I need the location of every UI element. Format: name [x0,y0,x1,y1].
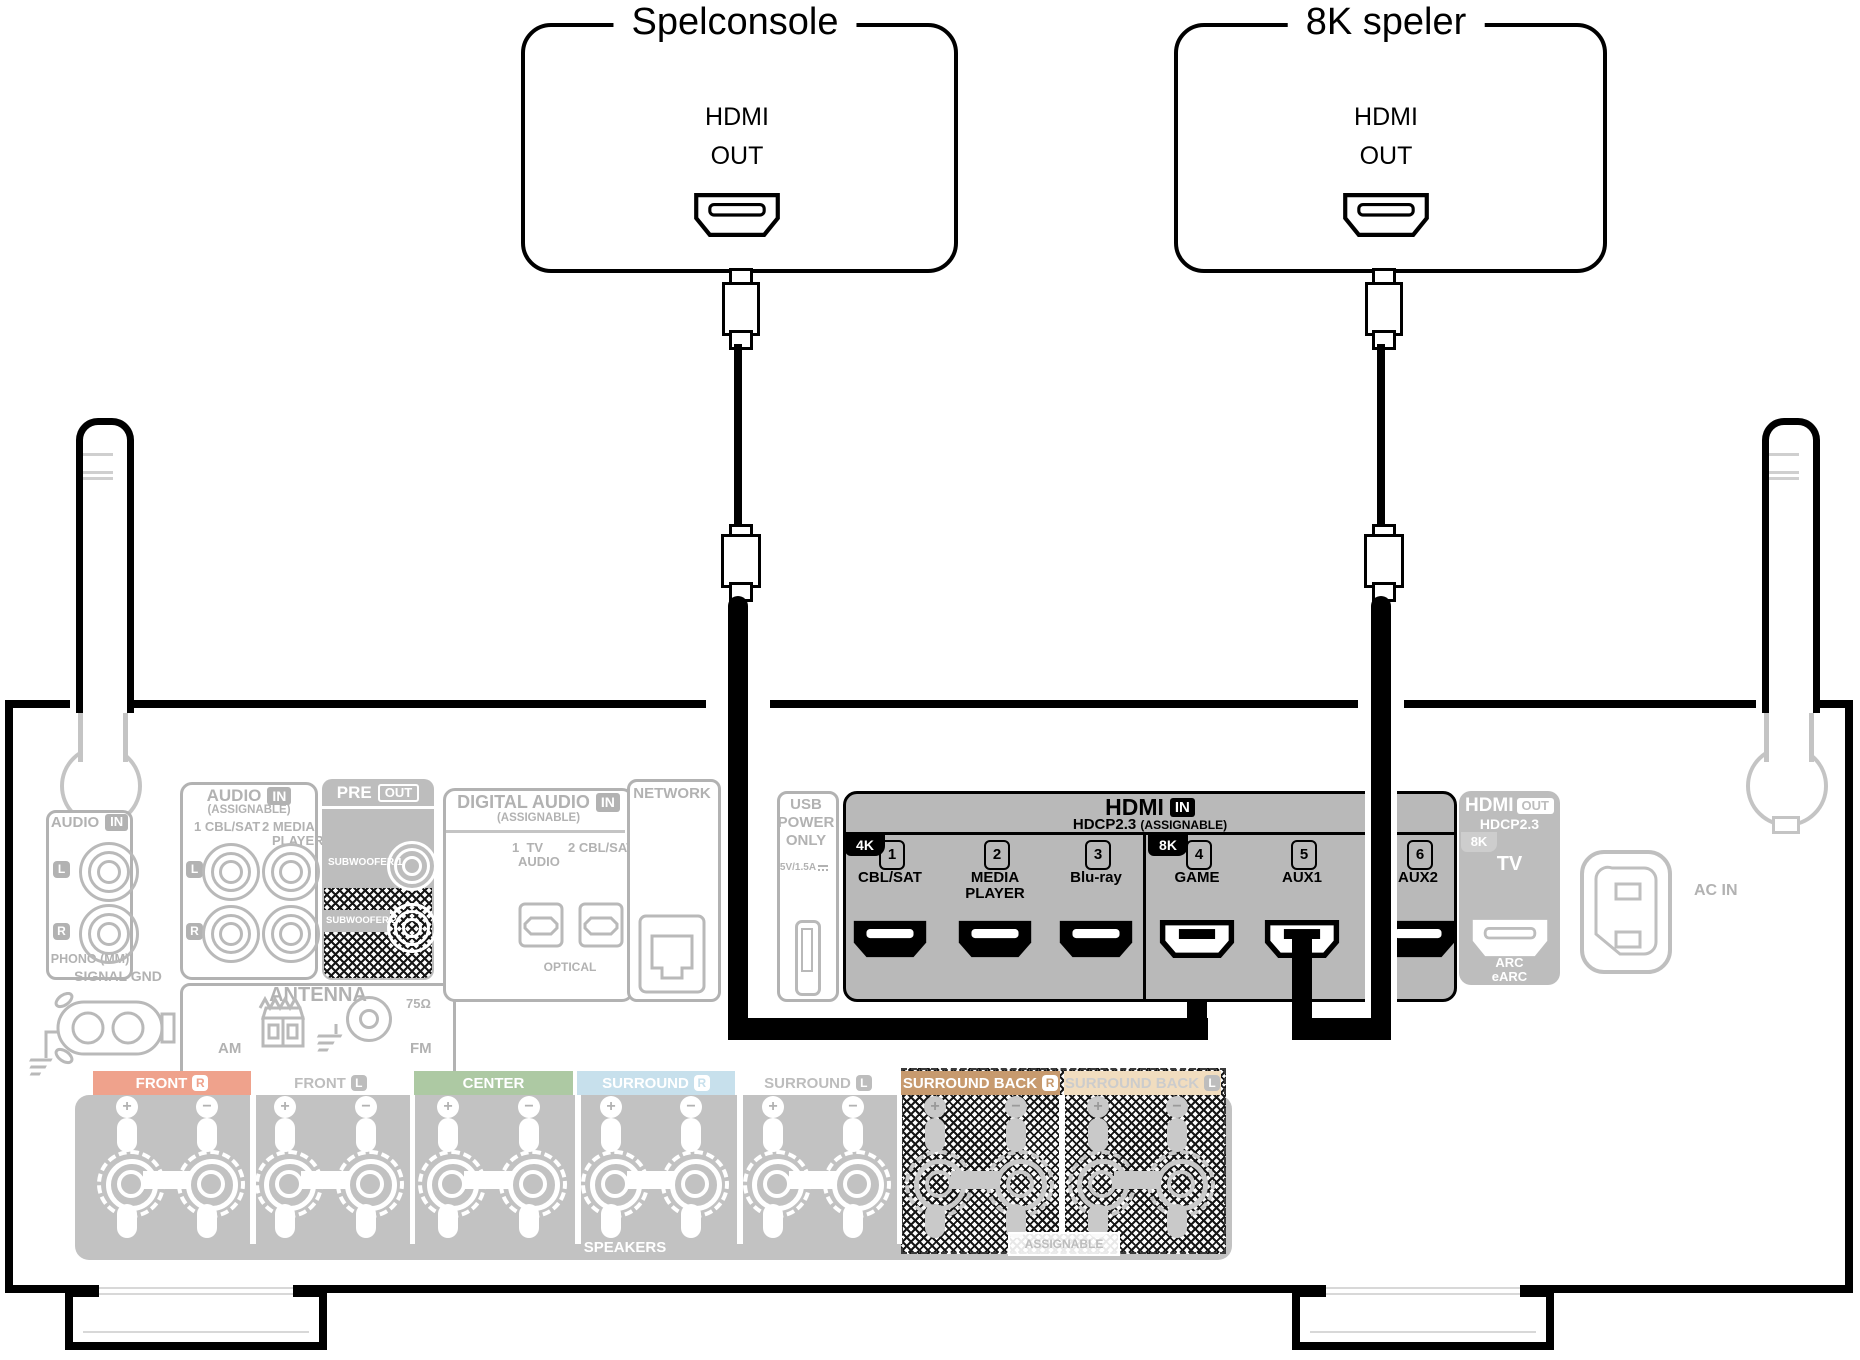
post-polarity-plus: + [600,1096,622,1118]
post-stem [1006,1118,1026,1152]
rca-jack [402,918,422,938]
arc-label: ARC [1459,955,1560,970]
hdmi-in-port-number-3: 3 [1085,840,1111,870]
ethernet-port-icon [638,914,706,994]
8k-tab: 8K [1148,835,1188,856]
terminal-divider [575,1095,581,1244]
post-polarity-minus: − [1166,1096,1188,1118]
in-badge: IN [596,793,620,811]
speaker-label-front-r: FRONTR [93,1071,251,1095]
post-stem [681,1118,701,1152]
post-polarity-plus: + [116,1096,138,1118]
speaker-label-surround-l: SURROUNDL [739,1071,897,1095]
binding-post-center [925,1170,953,1198]
ohm-label: 75Ω [406,996,431,1011]
terminal-divider [250,1095,256,1244]
binding-post-center [763,1170,791,1198]
channel-badge: R [192,1075,208,1091]
binding-post-center [117,1170,145,1198]
panel-gap [897,1095,902,1244]
usb-label2: POWER [775,814,837,831]
assignable-badge: ASSIGNABLE [1008,1232,1120,1256]
digital-audio-title: DIGITAL AUDIOIN [443,792,634,813]
post-stem [519,1118,539,1152]
game-console-out-label: OUT [637,142,837,171]
binding-post-center [843,1170,871,1198]
rca-jack [97,860,121,884]
speaker-label-surround-r: SURROUNDR [577,1071,735,1095]
8k-player-hdmi-out-icon [1341,192,1431,238]
signal-gnd-label: SIGNAL GND [58,968,178,984]
assignable-subtitle: (ASSIGNABLE) [443,812,634,824]
post-polarity-plus: + [1087,1096,1109,1118]
channel-badge: R [1042,1075,1058,1091]
post-polarity-plus: + [762,1096,784,1118]
post-stem [356,1118,376,1152]
earc-label: eARC [1459,969,1560,984]
am-terminal-icon [252,992,314,1062]
hdmi-in-zone-divider [1143,835,1146,999]
binding-post-center [356,1170,384,1198]
post-stem [275,1204,295,1238]
optical-caption: OPTICAL [510,960,630,974]
game-console-hdmi-label: HDMI [637,103,837,132]
rca-jack [97,922,121,946]
post-stem [438,1204,458,1238]
in-badge: IN [105,814,128,831]
subwoofer2-label: SUBWOOFER 2 [324,915,397,926]
connection-diagram: Spelconsole HDMI OUT 8K speler HDMI OUT … [0,0,1860,1360]
binding-post-center [601,1170,629,1198]
post-stem [601,1118,621,1152]
audio-in-assignable-title: AUDIOIN [180,786,318,806]
usb-label3: ONLY [775,832,837,849]
post-stem [763,1118,783,1152]
8k-tab-gray: 8K [1461,832,1497,852]
game-console-hdmi-out-icon [692,192,782,238]
channel-l-chip: L [53,861,70,878]
terminal-divider [737,1095,743,1244]
channel-badge: L [856,1075,872,1091]
assignable-subtitle: (ASSIGNABLE) [180,804,318,816]
am-ground-icon [312,1024,346,1060]
usb-label: USB [775,796,837,813]
post-stem [519,1204,539,1238]
channel-r-chip: R [53,923,70,940]
tv-label: TV [1459,853,1560,876]
receiver-foot-right [1292,1285,1554,1350]
post-stem [1167,1204,1187,1238]
rca-jack [219,922,243,946]
fm-label: FM [410,1040,432,1057]
rca-jack [279,860,303,884]
in-badge: IN [1170,798,1195,818]
post-polarity-minus: − [518,1096,540,1118]
hdmi-in-port-label-5: AUX1 [1242,870,1362,886]
hdmi-out-section: HDMIOUT HDCP2.3 8K TV ARC eARC [1459,791,1560,985]
divider [446,830,625,833]
post-polarity-minus: − [842,1096,864,1118]
post-stem [925,1118,945,1152]
dc-symbol [818,865,828,871]
hdmi-in-port-label-4: GAME [1137,870,1257,886]
panel-gap [410,1095,415,1244]
rca-jack [279,922,303,946]
post-stem [763,1204,783,1238]
hdmi-in-port-icon-2 [957,918,1033,960]
post-polarity-plus: + [437,1096,459,1118]
bottom-edge-gap [1320,1269,1526,1279]
binding-post-center [681,1170,709,1198]
post-stem [925,1204,945,1238]
8k-player-title: 8K speler [1288,0,1485,44]
cblsat-label: 2 CBL/SAT [568,840,634,855]
post-stem [117,1118,137,1152]
speaker-label-front-l: FRONTL [251,1071,410,1095]
hdmi-in-port-icon-4 [1159,918,1235,960]
binding-post-center [1167,1170,1195,1198]
post-stem [681,1204,701,1238]
input1-label: 1 CBL/SAT [194,819,260,834]
hdmi-out-hdcp: HDCP2.3 [1459,816,1560,832]
channel-badge: L [351,1075,367,1091]
rca-jack [219,860,243,884]
am-label: AM [218,1040,241,1057]
post-stem [843,1118,863,1152]
tv-audio-label2: AUDIO [518,854,560,869]
ac-inlet-icon [1578,848,1674,976]
channel-l-chip: L [186,861,203,878]
ac-in-label: AC IN [1694,882,1738,900]
binding-post-center [438,1170,466,1198]
network-title: NETWORK [625,785,719,802]
binding-post-center [197,1170,225,1198]
post-stem [117,1204,137,1238]
game-console-title: Spelconsole [613,0,856,44]
post-stem [197,1118,217,1152]
channel-badge: R [694,1075,710,1091]
hdmi-in-port-number-1: 1 [879,840,905,870]
out-badge: OUT [1517,798,1554,815]
input2-label: 2 MEDIA [262,819,315,834]
speaker-label-surround-back-l: SURROUND BACKL [1064,1071,1221,1095]
usb-port-inner [801,928,813,972]
hdmi-in-port-number-5: 5 [1291,840,1317,870]
post-stem [275,1118,295,1152]
left-antenna [76,418,134,713]
post-polarity-minus: − [355,1096,377,1118]
post-stem [601,1204,621,1238]
post-stem [1167,1118,1187,1152]
hdcp-assignable: (ASSIGNABLE) [1140,818,1227,832]
hdmi-in-port-number-4: 4 [1186,840,1212,870]
post-polarity-minus: − [680,1096,702,1118]
right-antenna [1762,418,1820,713]
hdmi-in-port-number-2: 2 [984,840,1010,870]
receiver-foot-left [65,1285,327,1350]
hdmi-out-tv-port-icon [1468,917,1552,959]
8k-player-hdmi-label: HDMI [1286,103,1486,132]
post-polarity-plus: + [274,1096,296,1118]
usb-rating: 5V/1.5A [771,862,837,873]
divider [322,806,434,809]
fm-coax-inner [359,1009,379,1029]
post-stem [843,1204,863,1238]
post-polarity-plus: + [924,1096,946,1118]
speaker-label-surround-back-r: SURROUND BACKR [901,1071,1060,1095]
post-polarity-minus: − [196,1096,218,1118]
in-badge: IN [267,787,291,805]
hdmi-in-port-label-1: CBL/SAT [830,870,950,886]
hdmi-out-title: HDMIOUT [1459,795,1560,817]
terminal-divider [1059,1095,1065,1234]
hdmi-in-port-number-6: 6 [1407,840,1433,870]
subwoofer2-band: SUBWOOFER 2 [324,910,390,932]
channel-badge: L [1204,1075,1220,1091]
8k-player-out-label: OUT [1286,142,1486,171]
binding-post-center [275,1170,303,1198]
binding-post-center [1088,1170,1116,1198]
pre-out-title: PREOUT [322,783,434,803]
post-stem [356,1204,376,1238]
post-polarity-minus: − [1005,1096,1027,1118]
speakers-caption: SPEAKERS [545,1239,705,1256]
rca-jack [402,856,422,876]
binding-post-center [519,1170,547,1198]
post-stem [438,1118,458,1152]
optical-port-icon [518,902,564,948]
tv-audio-label: 1 TV [512,840,543,855]
binding-post-center [1006,1170,1034,1198]
bottom-edge-gap [93,1269,299,1279]
audio-in-phono-title: AUDIOIN [46,814,133,831]
channel-r-chip: R [186,923,203,940]
speaker-label-center: CENTER [414,1071,573,1095]
optical-port-icon [578,902,624,948]
hdmi-in-port-icon-3 [1058,918,1134,960]
post-stem [197,1204,217,1238]
out-badge: OUT [378,784,419,802]
hdmi-in-port-icon-1 [852,918,928,960]
post-stem [1088,1118,1108,1152]
